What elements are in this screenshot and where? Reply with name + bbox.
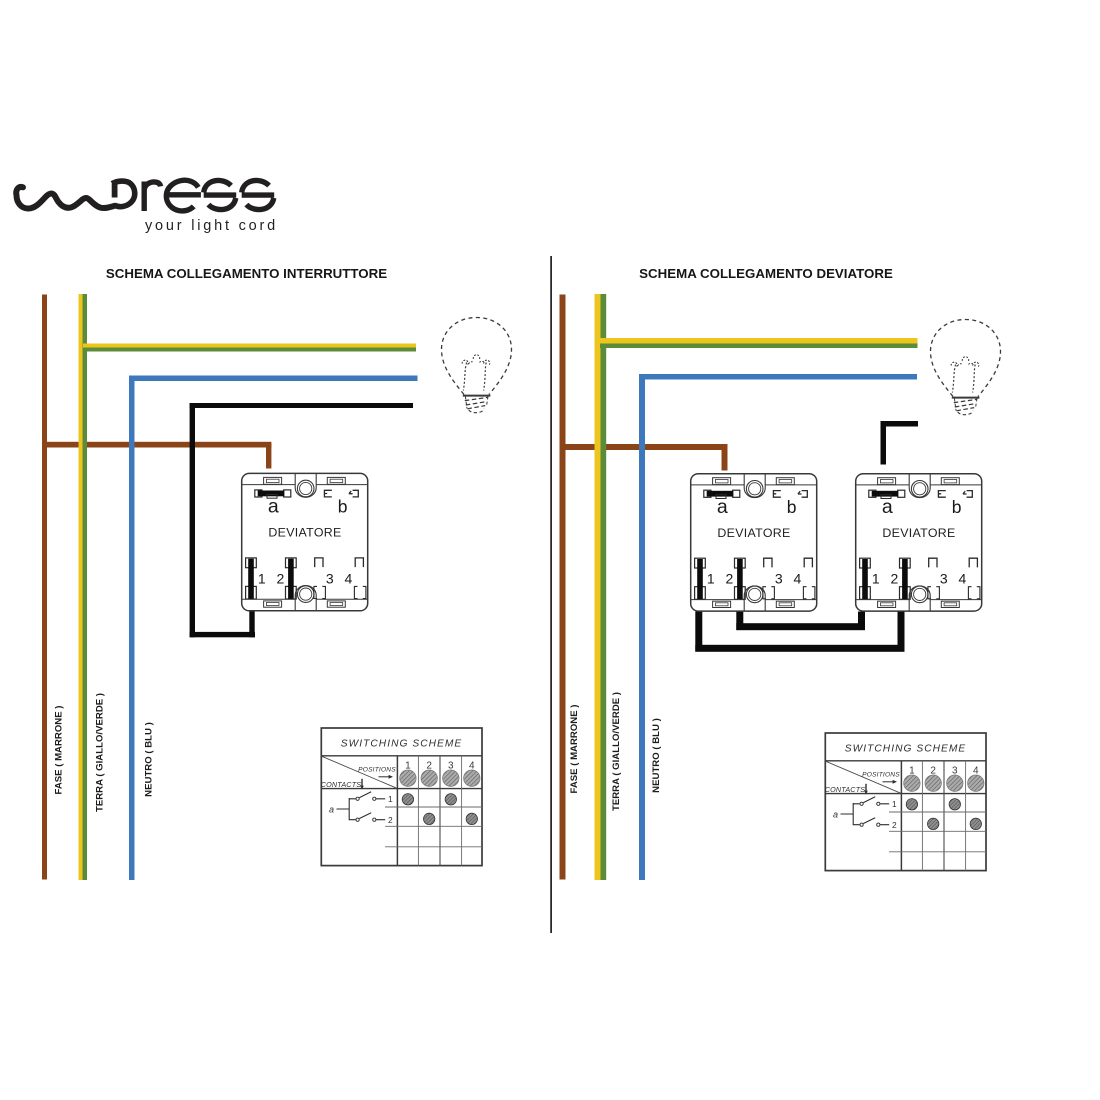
- svg-text:FASE ( MARRONE ): FASE ( MARRONE ): [569, 704, 580, 793]
- svg-text:TERRA ( GIALLO/VERDE ): TERRA ( GIALLO/VERDE ): [611, 692, 622, 811]
- svg-text:SCHEMA COLLEGAMENTO INTERRUTTO: SCHEMA COLLEGAMENTO INTERRUTTORE: [106, 266, 387, 281]
- svg-text:TERRA ( GIALLO/VERDE ): TERRA ( GIALLO/VERDE ): [95, 693, 106, 812]
- svg-text:FASE ( MARRONE ): FASE ( MARRONE ): [54, 705, 65, 794]
- svg-text:NEUTRO ( BLU ): NEUTRO ( BLU ): [651, 718, 662, 793]
- svg-text:NEUTRO ( BLU ): NEUTRO ( BLU ): [144, 722, 155, 797]
- svg-text:your light cord: your light cord: [145, 218, 278, 234]
- svg-text:SCHEMA COLLEGAMENTO DEVIATORE: SCHEMA COLLEGAMENTO DEVIATORE: [639, 266, 893, 281]
